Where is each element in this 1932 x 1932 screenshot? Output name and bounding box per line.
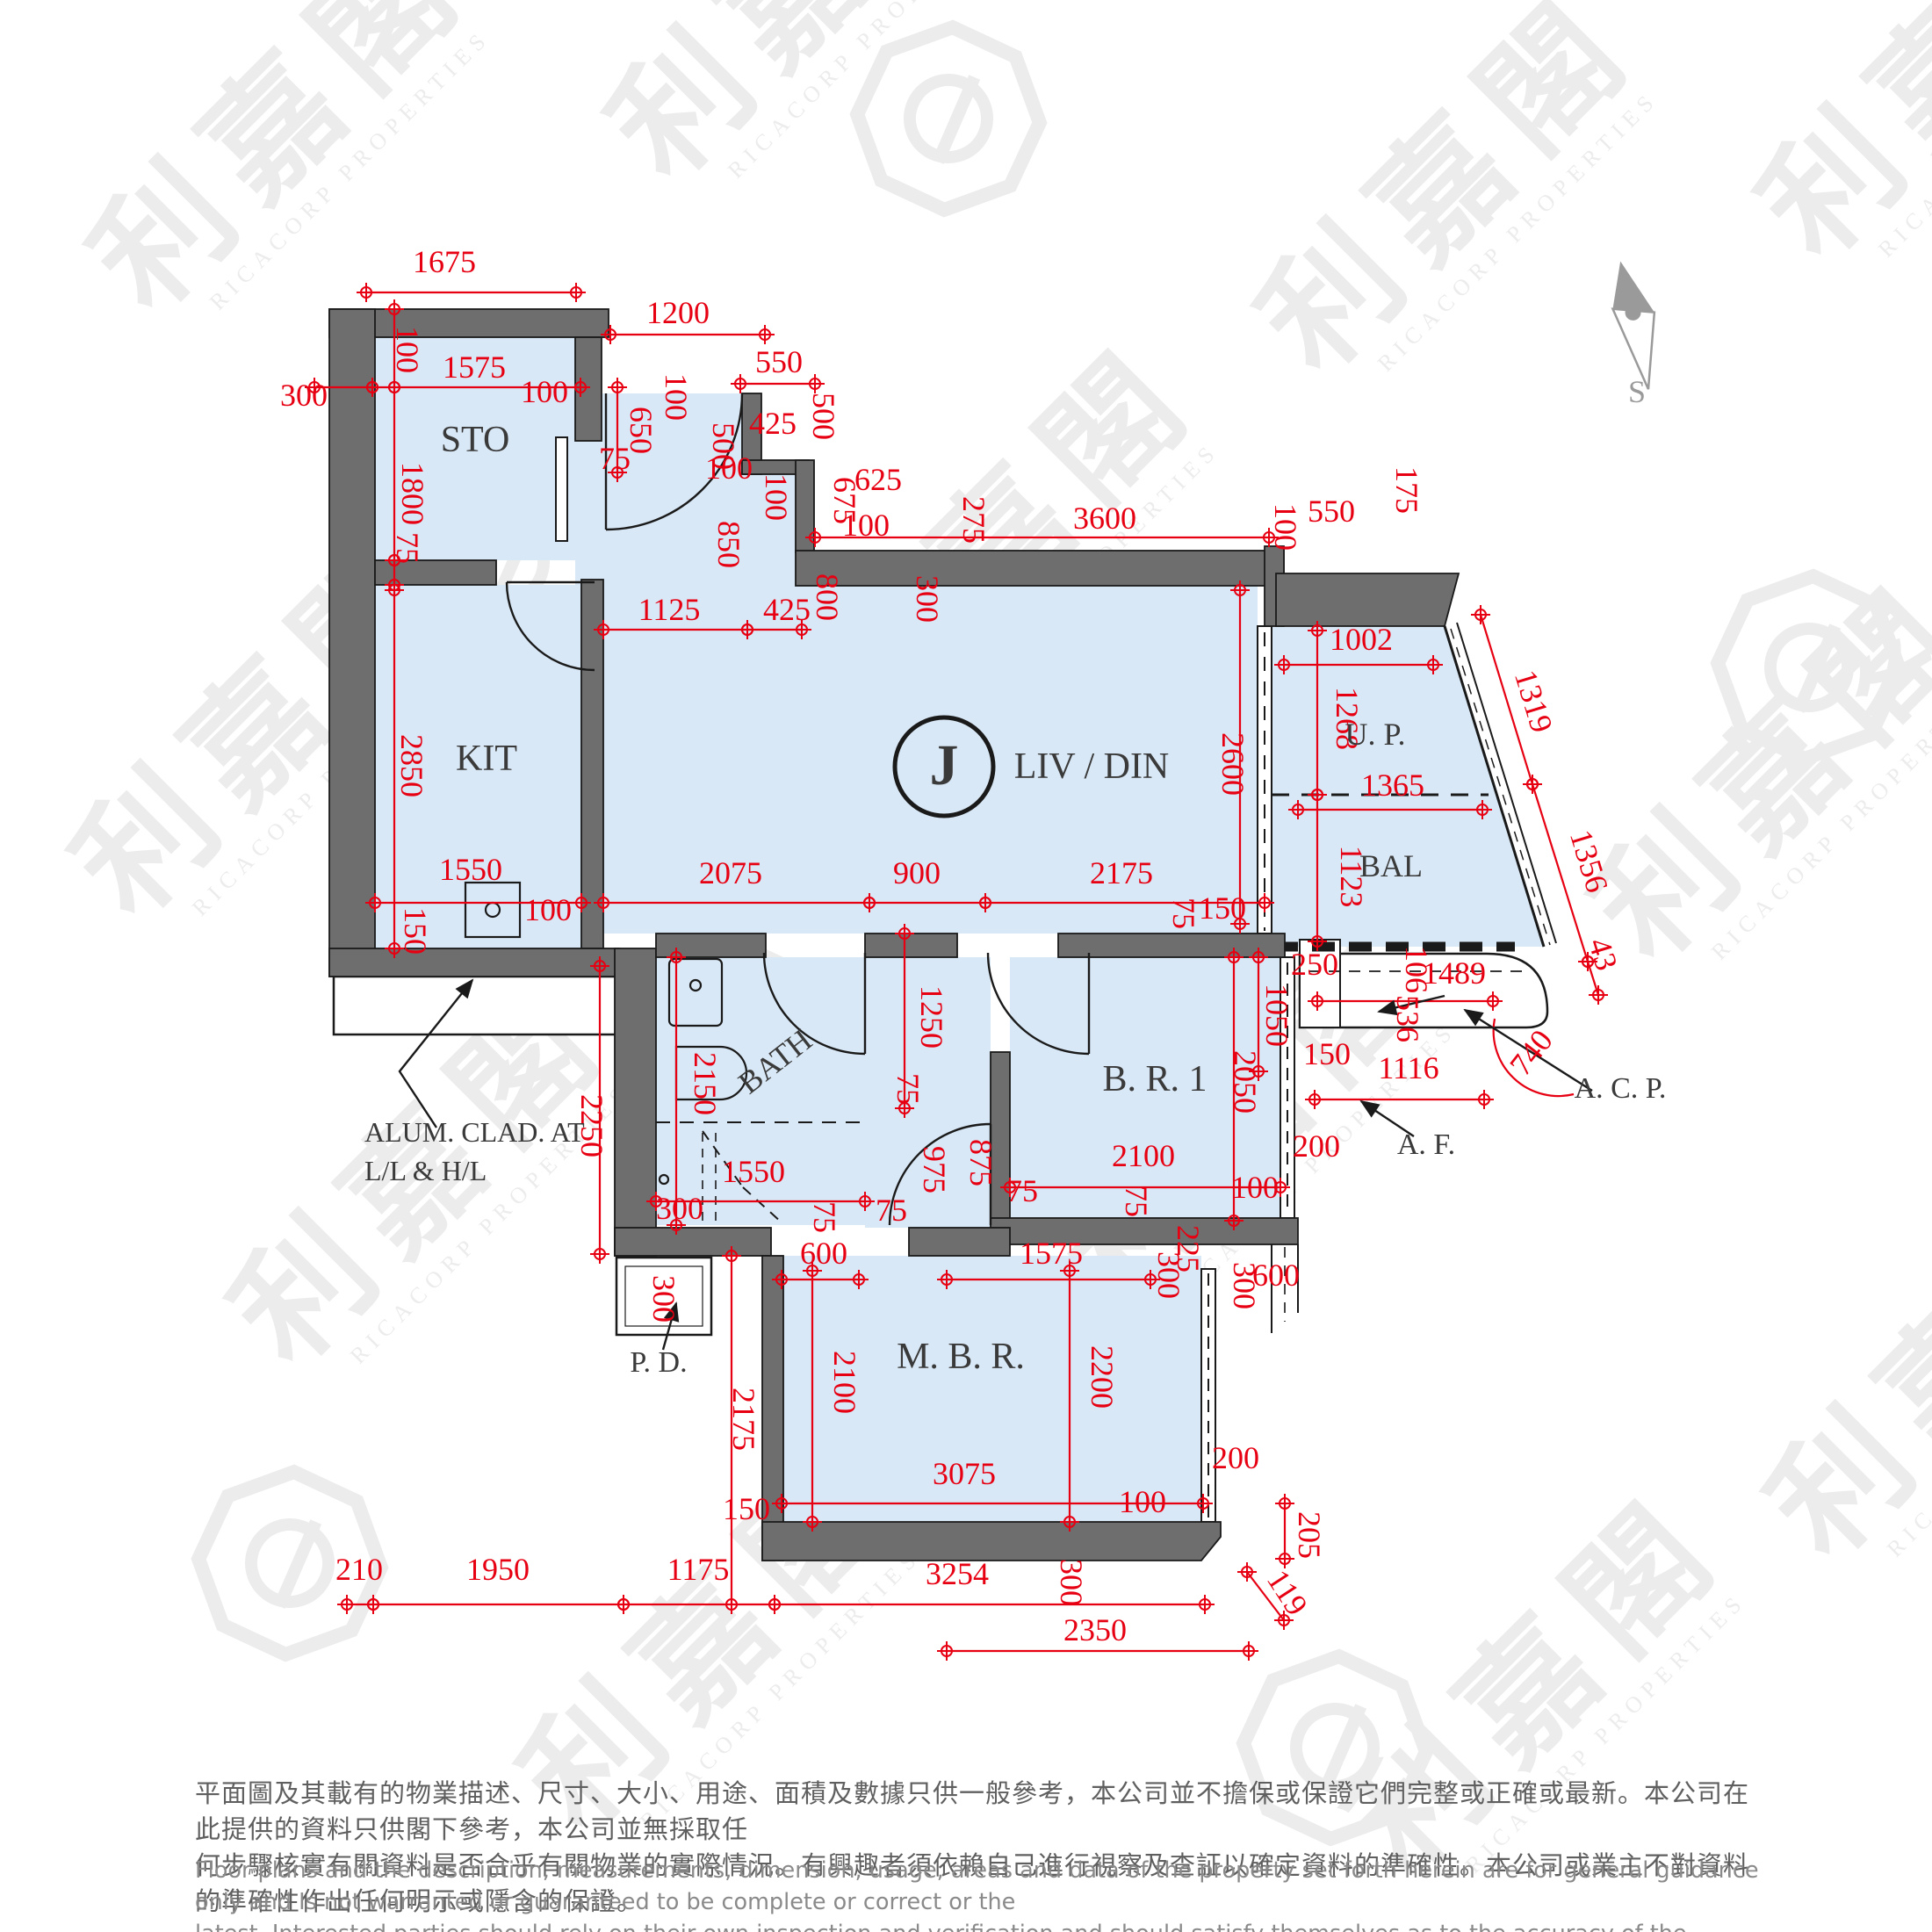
svg-text:利嘉閣: 利嘉閣 <box>1744 1153 1932 1584</box>
dim-label: 800 <box>810 573 845 621</box>
dim-label: 2150 <box>688 1052 723 1115</box>
dim-label: 200 <box>1293 1128 1340 1164</box>
dim-label: 75 <box>599 441 631 476</box>
disclaimer-en-line2: latest. Interested parties should rely o… <box>195 1918 1767 1932</box>
dim-label: 100 <box>842 508 890 543</box>
room-label-kit: KIT <box>456 739 517 779</box>
dim-label: 200 <box>1212 1440 1259 1475</box>
dim-label: 300 <box>656 1191 703 1226</box>
label-alum-clad-2: L/L & H/L <box>364 1155 487 1186</box>
dim-label: 3254 <box>926 1556 989 1591</box>
dim-label: 175 <box>1389 466 1424 514</box>
watermark-text: 利嘉閣RICACORP PROPERTIES <box>1235 0 1681 414</box>
dim-label: 2350 <box>1063 1612 1127 1647</box>
dim-label: 43 <box>1582 934 1625 974</box>
dim-label: 210 <box>335 1552 383 1587</box>
dim-label: 75 <box>1166 898 1201 929</box>
dim-label: 550 <box>1308 494 1355 529</box>
dim-label: 1175 <box>667 1552 730 1587</box>
dim-label: 100 <box>759 473 794 521</box>
dim-label: 100 <box>524 892 572 927</box>
dim-label: 100 <box>659 373 694 421</box>
label-alum-clad-1: ALUM. CLAD. AT <box>364 1116 585 1148</box>
dim-label: 75 <box>1119 1186 1154 1217</box>
dim-label: 2200 <box>1085 1345 1120 1409</box>
dim-label: 875 <box>963 1139 998 1186</box>
dim-label: 75 <box>876 1193 907 1228</box>
dim-label: 900 <box>893 855 941 890</box>
dim-label: 600 <box>800 1236 847 1271</box>
dim-label: 275 <box>956 496 991 544</box>
room-label-br1: B. R. 1 <box>1102 1059 1207 1099</box>
floor-plan-svg: 利嘉閣RICACORP PROPERTIES利嘉閣RICACORP PROPER… <box>0 0 1932 1932</box>
dim-label: 300 <box>646 1275 681 1323</box>
dim-label: 1116 <box>1378 1050 1438 1085</box>
watermark-text: 利嘉閣RICACORP PROPERTIES <box>67 0 513 352</box>
dim-label: 1800 <box>395 462 430 525</box>
dim-label: 2050 <box>1228 1050 1263 1114</box>
unit-letter: J <box>930 733 959 797</box>
dim-label: 1200 <box>646 295 710 330</box>
dim-label: 1002 <box>1330 622 1393 657</box>
floor-plan-page: 利嘉閣RICACORP PROPERTIES利嘉閣RICACORP PROPER… <box>0 0 1932 1932</box>
svg-text:利嘉閣: 利嘉閣 <box>1235 0 1666 398</box>
dim-label: 2175 <box>726 1388 761 1451</box>
label-af: A. F. <box>1397 1128 1455 1161</box>
watermark-text: 利嘉閣RICACORP PROPERTIES <box>1744 1153 1932 1599</box>
dim-label: 850 <box>711 521 746 568</box>
svg-text:利嘉閣: 利嘉閣 <box>67 0 498 336</box>
dim-label: 975 <box>917 1146 952 1193</box>
dim-label: 100 <box>390 326 425 373</box>
dim-label: 1050 <box>1259 984 1294 1047</box>
dim-label: 100 <box>1231 1170 1279 1205</box>
dim-label: 740 <box>1503 1023 1560 1082</box>
dim-label: 300 <box>1227 1262 1262 1309</box>
compass-icon <box>1604 257 1667 393</box>
dim-label: 150 <box>1303 1036 1351 1071</box>
dim-label: 2100 <box>827 1351 862 1414</box>
dim-label: 300 <box>280 378 328 413</box>
dim-label: 2600 <box>1215 732 1251 796</box>
room-label-sto: STO <box>441 420 510 460</box>
room-label-pd: P. D. <box>630 1346 687 1379</box>
dim-label: 75 <box>1006 1173 1038 1208</box>
dim-label: 75 <box>390 532 425 564</box>
dim-label: 425 <box>749 406 797 441</box>
sto-sliding-door <box>556 437 567 541</box>
dim-label: 119 <box>1260 1563 1315 1621</box>
room-label-bal: BAL <box>1359 848 1423 883</box>
dim-label: 100 <box>1119 1484 1166 1519</box>
mbr-window <box>1201 1269 1215 1522</box>
dim-label: 205 <box>1292 1511 1327 1559</box>
dim-label: 1575 <box>1020 1236 1083 1271</box>
room-label-mbr: M. B. R. <box>897 1337 1025 1377</box>
room-label-up: U. P. <box>1344 717 1405 752</box>
dim-label: 150 <box>723 1491 770 1526</box>
dim-label: 100 <box>521 374 568 409</box>
dim-label: 500 <box>806 393 841 440</box>
dim-label: 425 <box>763 592 811 627</box>
compass-s-label: S <box>1628 374 1646 409</box>
room-label-livdin: LIV / DIN <box>1014 746 1170 787</box>
dim-label: 536 <box>1390 995 1425 1042</box>
dim-label: 3600 <box>1073 501 1136 536</box>
dim-label: 1365 <box>1361 768 1424 803</box>
dim-label: 300 <box>1054 1559 1089 1606</box>
dim-label: 550 <box>755 344 803 379</box>
dim-label: 1675 <box>413 244 476 279</box>
dim-label: 3075 <box>933 1456 996 1491</box>
disclaimer-english: Floor plans and the description, measure… <box>195 1855 1767 1932</box>
dim-label: 2175 <box>1090 855 1153 890</box>
dim-label: 300 <box>1151 1251 1186 1299</box>
watermark-text: 利嘉閣RICACORP PROPERTIES <box>1735 0 1932 299</box>
dim-label: 1550 <box>722 1154 785 1189</box>
dim-label: 75 <box>890 1073 926 1105</box>
dim-label: 2075 <box>699 855 762 890</box>
dim-label: 150 <box>1199 890 1246 926</box>
dim-label: 150 <box>398 907 433 955</box>
dim-label: 100 <box>1268 503 1303 551</box>
dim-label: 100 <box>705 451 753 486</box>
dim-label: 1125 <box>638 592 701 627</box>
dim-label: 1575 <box>443 350 506 385</box>
dim-label: 625 <box>854 462 902 497</box>
dim-label: 1950 <box>466 1552 530 1587</box>
dim-label: 1550 <box>439 852 502 887</box>
dim-label: 2850 <box>394 734 429 797</box>
disclaimer-zh-line1: 平面圖及其載有的物業描述、尺寸、大小、用途、面積及數據只供一般參考，本公司並不擔… <box>195 1776 1767 1848</box>
disclaimer-en-line1: Floor plans and the description, measure… <box>195 1855 1767 1918</box>
dim-label: 1489 <box>1423 955 1486 991</box>
dim-label: 250 <box>1291 947 1338 982</box>
alum-clad-strip <box>334 977 618 1034</box>
dim-label: 300 <box>910 575 945 623</box>
label-acp: A. C. P. <box>1575 1072 1667 1105</box>
dim-label: 2100 <box>1112 1138 1175 1173</box>
dim-label: 75 <box>807 1201 842 1233</box>
dim-label: 1250 <box>914 985 949 1049</box>
